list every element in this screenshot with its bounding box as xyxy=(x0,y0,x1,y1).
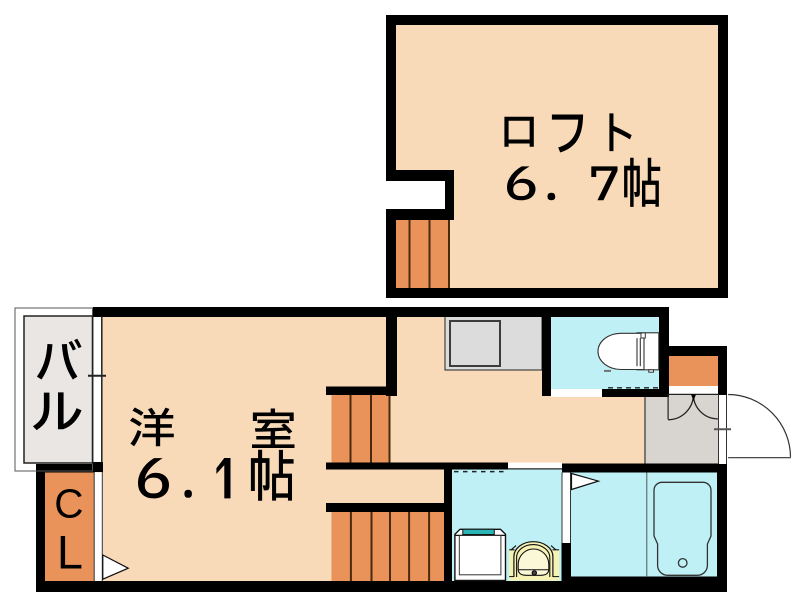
svg-text:L: L xyxy=(57,527,83,579)
svg-text:C: C xyxy=(54,481,83,527)
